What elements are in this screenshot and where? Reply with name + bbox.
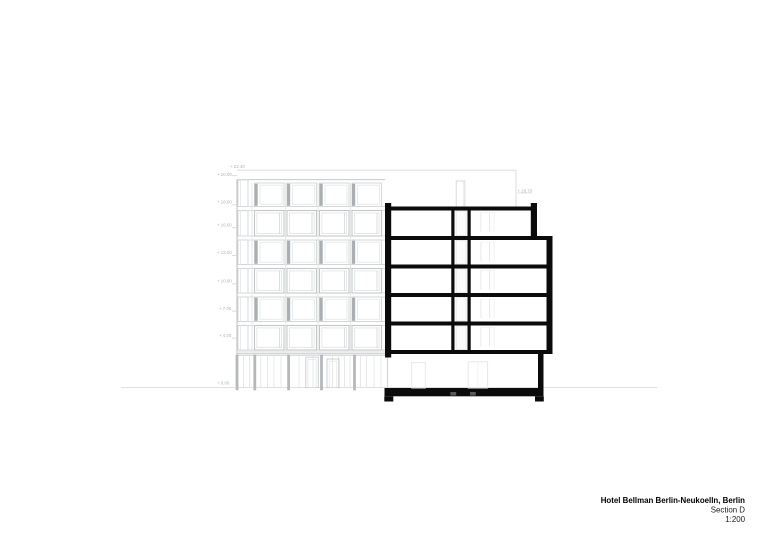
svg-text:+ 10.00: + 10.00: [217, 279, 232, 284]
svg-text:+ 13.00: + 13.00: [217, 250, 232, 255]
svg-text:Section D: Section D: [711, 505, 746, 514]
svg-text:+ 0.00: + 0.00: [217, 381, 230, 386]
svg-text:+ 16.00: + 16.00: [217, 222, 232, 227]
svg-text:Hotel Bellman Berlin-Neukoelln: Hotel Bellman Berlin-Neukoelln, Berlin: [601, 496, 745, 505]
svg-text:+ 18.00: + 18.00: [217, 200, 232, 205]
svg-text:1:200: 1:200: [725, 515, 745, 524]
svg-text:+ 4.00: + 4.00: [219, 333, 232, 338]
svg-text:+ 22.40: + 22.40: [230, 164, 245, 169]
svg-text:+ 20.00: + 20.00: [217, 172, 232, 177]
svg-text:+ 7.00: + 7.00: [219, 306, 232, 311]
